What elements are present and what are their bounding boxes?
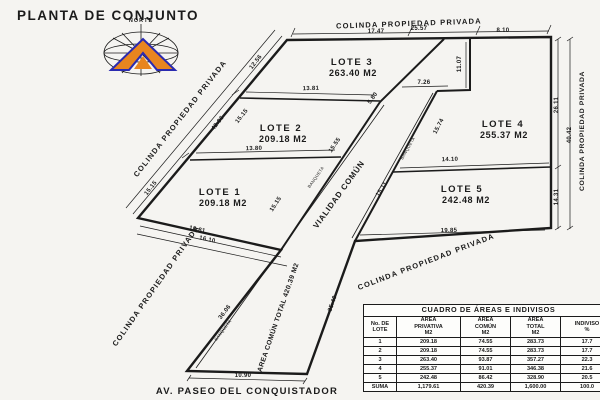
- dim-top-2: 25.57: [411, 26, 428, 32]
- table-row: 4 255.37 91.01 346.38 21.6: [364, 365, 600, 374]
- areas-table: CUADRO DE ÁREAS E INDIVISOS No. DE LOTE …: [363, 304, 600, 392]
- table-cell: 1,179.61: [397, 383, 461, 392]
- lot3-name: LOTE 3: [331, 57, 373, 68]
- col-header-comun: ÁREA COMÚN M2: [461, 317, 511, 338]
- table-cell: 1: [364, 338, 397, 347]
- table-cell: 255.37: [397, 365, 461, 374]
- table-cell: 21.6: [561, 365, 600, 374]
- table-cell: 22.3: [561, 356, 600, 365]
- table-cell: 209.18: [397, 347, 461, 356]
- dim-notch-top: 7.26: [418, 80, 431, 86]
- table-cell: 4: [364, 365, 397, 374]
- table-cell: 263.40: [397, 356, 461, 365]
- lot4-name: LOTE 4: [482, 119, 524, 130]
- dim-lot1-bottom-outer: 16.10: [199, 235, 217, 244]
- table-cell: 93.87: [461, 356, 511, 365]
- lot2-name: LOTE 2: [260, 123, 302, 134]
- table-row: 3 263.40 93.87 357.27 22.3: [364, 356, 600, 365]
- col-header-total: ÁREA TOTAL M2: [511, 317, 561, 338]
- dim-div-lot2-lot1: 13.80: [246, 146, 263, 153]
- dim-div-lot3-lot2: 13.81: [303, 86, 320, 93]
- dim-right-2: 14.31: [554, 188, 560, 205]
- areas-table-header-row: No. DE LOTE ÁREA PRIVATIVA M2 ÁREA COMÚN…: [364, 317, 600, 338]
- table-cell: 20.5: [561, 374, 600, 383]
- sidewalk-label-upper-left: BANQUETA: [307, 165, 326, 188]
- table-cell: 17.7: [561, 338, 600, 347]
- dim-left-1: 12.56: [249, 54, 264, 71]
- col-header-privativa: ÁREA PRIVATIVA M2: [397, 317, 461, 338]
- dim-road-left-upper: 15.55: [328, 137, 342, 154]
- table-cell: 1,600.00: [511, 383, 561, 392]
- table-cell: 91.01: [461, 365, 511, 374]
- table-cell: 283.73: [511, 347, 561, 356]
- boundary-label-lower-left: COLINDA PROPIEDAD PRIVADA: [110, 223, 201, 348]
- dim-lot4-left-diag: 15.74: [433, 118, 446, 136]
- dim-top-1: 17.47: [368, 29, 385, 35]
- table-row: 1 209.18 74.55 283.73 17.7: [364, 338, 600, 347]
- common-area-total-label: AREA COMÚN TOTAL 420.39 M2: [255, 261, 301, 372]
- table-cell: 86.42: [461, 374, 511, 383]
- lot5-name: LOTE 5: [441, 184, 483, 195]
- site-plan: PLANTA DE CONJUNTO NORTE: [0, 0, 600, 400]
- sidewalk-label-lower: BANQUETA: [213, 319, 232, 342]
- lot4-area: 255.37 M2: [480, 130, 528, 140]
- dim-lot1-road-edge: 15.15: [269, 196, 283, 213]
- col-header-indiviso: INDIVISO %: [561, 317, 600, 338]
- lot-labels: LOTE 1 209.18 M2 LOTE 2 209.18 M2 LOTE 3…: [199, 57, 528, 208]
- table-cell: 283.73: [511, 338, 561, 347]
- table-cell: 242.48: [397, 374, 461, 383]
- dim-lot4-left-vert: 11.07: [457, 56, 463, 73]
- boundary-label-left: COLINDA PROPIEDAD PRIVADA: [132, 58, 229, 178]
- dim-notch-diag: 5.80: [367, 91, 380, 105]
- street-name-label: AV. PASEO DEL CONQUISTADOR: [156, 386, 338, 397]
- table-row: 2 209.18 74.55 283.73 17.7: [364, 347, 600, 356]
- table-cell: 74.55: [461, 347, 511, 356]
- dim-right-1: 26.11: [554, 97, 560, 114]
- lot2-area: 209.18 M2: [259, 134, 307, 144]
- areas-table-title: CUADRO DE ÁREAS E INDIVISOS: [364, 305, 600, 317]
- compass-north-label: NORTE: [129, 18, 153, 24]
- boundary-label-right: COLINDA PROPIEDAD PRIVADA: [579, 71, 586, 191]
- table-cell: 209.18: [397, 338, 461, 347]
- lot5-area: 242.48 M2: [442, 195, 490, 205]
- compass-rose-icon: [104, 24, 178, 76]
- lot1-area: 209.18 M2: [199, 198, 247, 208]
- table-cell: 346.38: [511, 365, 561, 374]
- dim-left-total: 42.86: [211, 115, 226, 132]
- dim-left-2: 15.15: [235, 108, 250, 125]
- dim-road-right-lower: 35.40: [328, 295, 339, 313]
- table-cell: 17.7: [561, 347, 600, 356]
- table-sum-row: SUMA 1,179.61 420.39 1,600.00 100.0: [364, 383, 600, 392]
- dim-road-right-upper: 15.11: [375, 181, 389, 198]
- dim-lot5-bottom: 19.85: [441, 228, 458, 234]
- lot1-name: LOTE 1: [199, 187, 241, 198]
- col-header-lote: No. DE LOTE: [364, 317, 397, 338]
- table-cell: SUMA: [364, 383, 397, 392]
- page-title: PLANTA DE CONJUNTO: [17, 8, 199, 23]
- dim-road-left-lower: 36.06: [218, 304, 233, 321]
- dim-top-3: 8.10: [497, 28, 510, 34]
- table-cell: 74.55: [461, 338, 511, 347]
- boundary-label-top: COLINDA PROPIEDAD PRIVADA: [336, 16, 482, 30]
- table-cell: 2: [364, 347, 397, 356]
- table-cell: 100.0: [561, 383, 600, 392]
- table-cell: 357.27: [511, 356, 561, 365]
- table-cell: 328.90: [511, 374, 561, 383]
- table-row: 5 242.48 86.42 328.90 20.5: [364, 374, 600, 383]
- dim-street-mouth: 10.90: [235, 373, 252, 379]
- table-cell: 3: [364, 356, 397, 365]
- dim-div-lot4-lot5: 14.10: [442, 157, 459, 164]
- dim-right-total: 40.42: [567, 126, 573, 143]
- lot3-area: 263.40 M2: [329, 68, 377, 78]
- table-cell: 5: [364, 374, 397, 383]
- table-cell: 420.39: [461, 383, 511, 392]
